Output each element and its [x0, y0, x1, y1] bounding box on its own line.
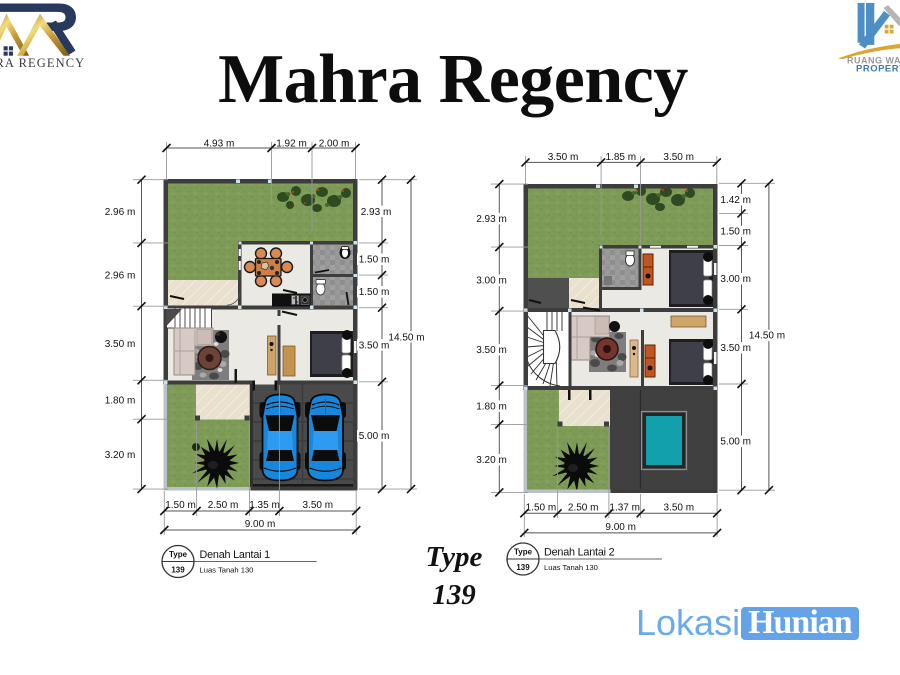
svg-text:2.00 m: 2.00 m	[319, 139, 350, 150]
svg-text:Type: Type	[169, 550, 188, 559]
svg-text:9.00 m: 9.00 m	[605, 522, 636, 533]
svg-text:3.50 m: 3.50 m	[105, 339, 136, 350]
svg-text:5.00 m: 5.00 m	[720, 437, 751, 448]
svg-text:1.37 m: 1.37 m	[609, 502, 640, 513]
svg-text:2.93 m: 2.93 m	[361, 207, 392, 218]
svg-text:14.50 m: 14.50 m	[388, 332, 424, 343]
svg-text:Type: Type	[514, 548, 533, 557]
svg-text:3.50 m: 3.50 m	[664, 502, 695, 513]
svg-text:1.35 m: 1.35 m	[249, 500, 280, 511]
svg-text:1.85 m: 1.85 m	[606, 152, 637, 163]
svg-text:1.80 m: 1.80 m	[105, 396, 136, 407]
svg-text:3.20 m: 3.20 m	[105, 450, 136, 461]
svg-text:3.50 m: 3.50 m	[303, 500, 334, 511]
svg-text:5.00 m: 5.00 m	[359, 431, 390, 442]
svg-text:3.50 m: 3.50 m	[548, 152, 579, 163]
svg-text:Luas Tanah 130: Luas Tanah 130	[544, 563, 598, 572]
svg-text:3.00 m: 3.00 m	[720, 274, 751, 285]
svg-text:2.96 m: 2.96 m	[105, 270, 136, 281]
svg-text:3.50 m: 3.50 m	[663, 152, 694, 163]
svg-text:2.50 m: 2.50 m	[208, 500, 239, 511]
svg-text:1.50 m: 1.50 m	[526, 502, 557, 513]
svg-text:1.50 m: 1.50 m	[165, 500, 196, 511]
svg-text:139: 139	[171, 566, 185, 575]
svg-text:Denah Lantai 1: Denah Lantai 1	[200, 549, 271, 561]
svg-text:3.50 m: 3.50 m	[720, 343, 751, 354]
svg-text:14.50 m: 14.50 m	[749, 331, 785, 342]
svg-text:4.93 m: 4.93 m	[204, 139, 235, 150]
svg-text:2.96 m: 2.96 m	[105, 207, 136, 218]
svg-text:3.50 m: 3.50 m	[476, 345, 507, 356]
svg-text:1.92 m: 1.92 m	[276, 139, 307, 150]
svg-text:1.42 m: 1.42 m	[720, 195, 751, 206]
svg-text:1.50 m: 1.50 m	[359, 287, 390, 298]
svg-text:2.50 m: 2.50 m	[568, 502, 599, 513]
svg-text:3.00 m: 3.00 m	[476, 276, 507, 287]
svg-text:9.00 m: 9.00 m	[245, 519, 276, 530]
svg-text:1.80 m: 1.80 m	[476, 401, 507, 412]
svg-text:3.20 m: 3.20 m	[476, 455, 507, 466]
svg-text:Luas Tanah 130: Luas Tanah 130	[200, 566, 254, 575]
svg-text:3.50 m: 3.50 m	[359, 340, 390, 351]
svg-text:139: 139	[516, 563, 530, 572]
svg-text:1.50 m: 1.50 m	[720, 227, 751, 238]
svg-text:Denah Lantai 2: Denah Lantai 2	[544, 547, 615, 559]
svg-text:1.50 m: 1.50 m	[359, 255, 390, 266]
svg-text:2.93 m: 2.93 m	[476, 214, 507, 225]
